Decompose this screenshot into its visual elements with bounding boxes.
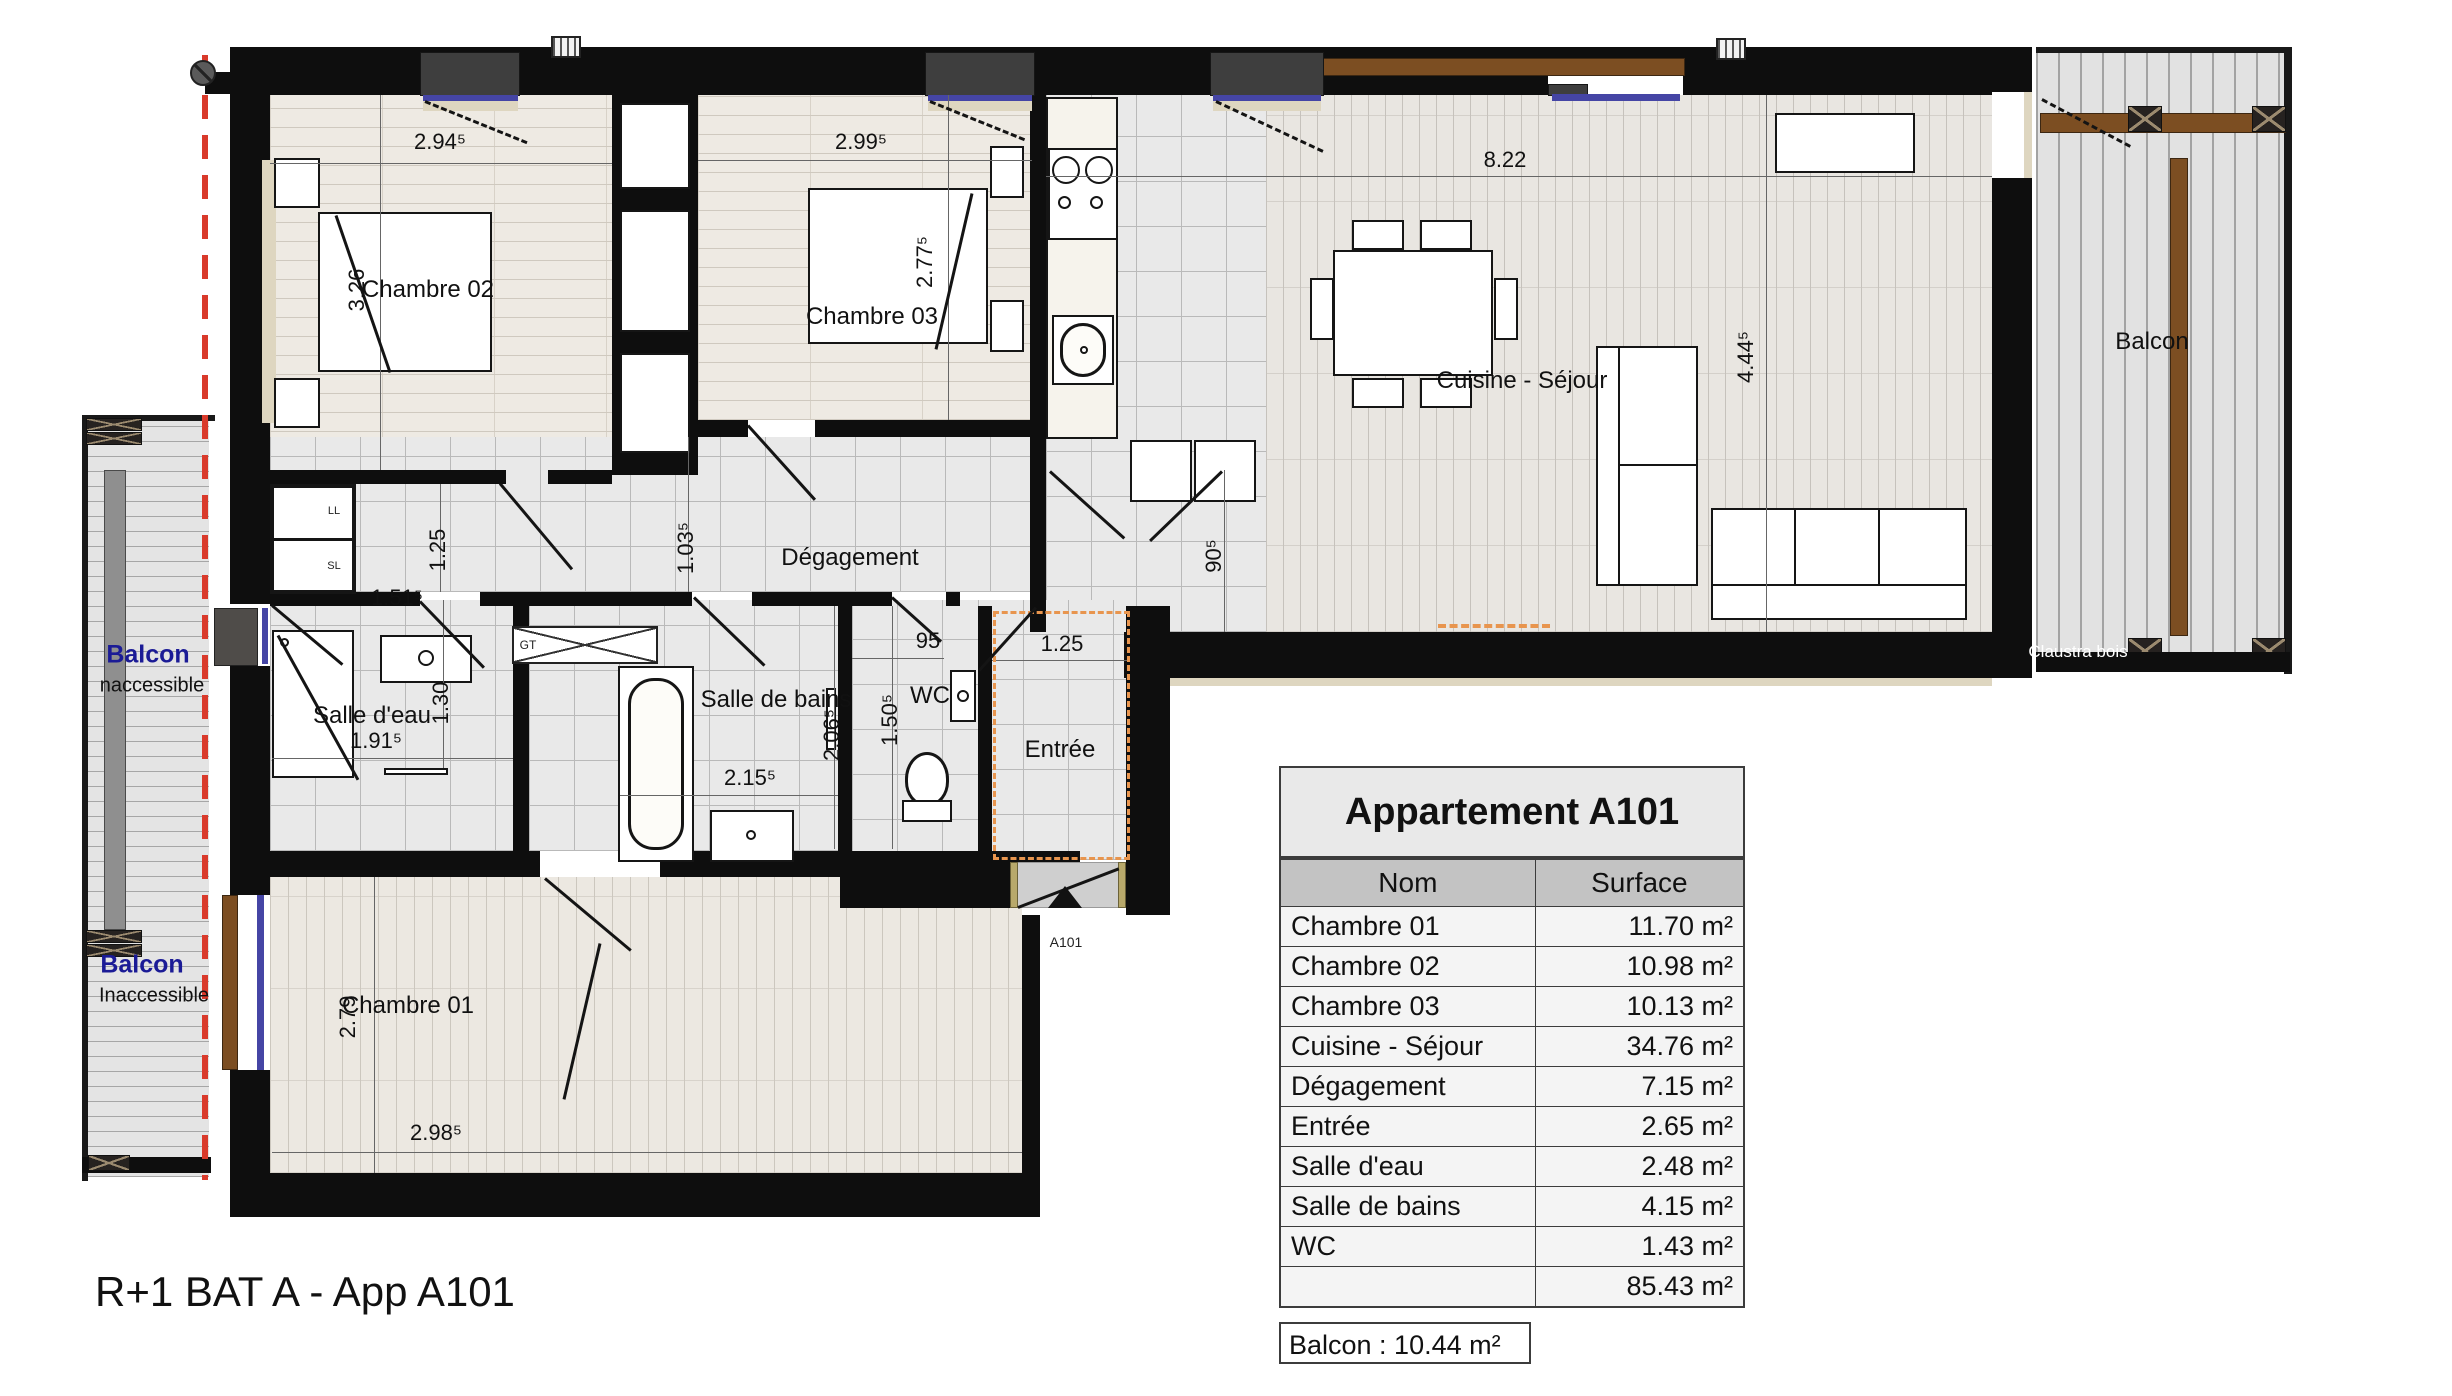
chair <box>1310 278 1334 340</box>
dimension-label: 1.03⁵ <box>673 522 699 574</box>
balcony-left-bottom-label: Balcon <box>100 951 183 980</box>
dimension-label: 3.26 <box>344 269 370 312</box>
room-label-entree: Entrée <box>1025 736 1096 764</box>
surface-value-cell: 34.76 m² <box>1535 1027 1744 1067</box>
dimension-label: 90⁵ <box>1201 539 1227 573</box>
balcony-edge <box>2036 47 2292 53</box>
wall <box>752 592 892 606</box>
small-label-gt: GT <box>520 638 537 652</box>
roller-shutter <box>420 52 520 96</box>
table-row: WC1.43 m² <box>1280 1227 1744 1267</box>
chair <box>1352 220 1404 250</box>
table-row: Chambre 0310.13 m² <box>1280 987 1744 1027</box>
wall <box>978 606 992 851</box>
burner-icon <box>1090 196 1103 209</box>
dimension-label: 2.94⁵ <box>414 129 466 155</box>
dimension-line <box>272 758 513 759</box>
dimension-label: 8.22 <box>1484 147 1527 173</box>
wall <box>230 1173 1040 1217</box>
facade-line <box>1140 678 1992 686</box>
basin-icon <box>418 650 434 666</box>
table-row: Entrée2.65 m² <box>1280 1107 1744 1147</box>
small-label-sl: SL <box>327 560 340 572</box>
wall <box>230 851 540 877</box>
balcony-column <box>104 470 126 930</box>
wall <box>698 420 748 437</box>
drain-icon <box>746 830 756 840</box>
room-label-chambre-02: Chambre 02 <box>362 276 494 304</box>
furniture-line <box>1618 348 1620 584</box>
table-row: Chambre 0111.70 m² <box>1280 907 1744 947</box>
table-row: Salle d'eau2.48 m² <box>1280 1147 1744 1187</box>
dimension-label: 95 <box>916 628 940 654</box>
balcony-edge <box>2284 47 2292 674</box>
dimension-label: 1.25 <box>1041 631 1084 657</box>
surface-value-cell: 10.13 m² <box>1535 987 1744 1027</box>
surface-value-cell: 2.48 m² <box>1535 1147 1744 1187</box>
table-row: Cuisine - Séjour34.76 m² <box>1280 1027 1744 1067</box>
room-label-degagement: Dégagement <box>781 544 918 572</box>
wall <box>815 420 1030 437</box>
post-icon <box>86 930 142 943</box>
dimension-line <box>852 658 944 659</box>
dimension-line <box>620 795 838 796</box>
room-name-cell: Dégagement <box>1280 1067 1535 1107</box>
dimension-label: 4.44⁵ <box>1733 331 1759 383</box>
surface-value-cell: 11.70 m² <box>1535 907 1744 947</box>
chair <box>1494 278 1518 340</box>
room-name-cell: Chambre 01 <box>1280 907 1535 947</box>
dimension-label: 2.99⁵ <box>835 129 887 155</box>
claustra-bois-label: Claustra bois <box>2028 642 2127 662</box>
room-label-chambre-01: Chambre 01 <box>342 992 474 1020</box>
wardrobe <box>620 353 690 453</box>
wall <box>480 592 692 606</box>
cabinet <box>1194 440 1256 502</box>
entrance-arrow-icon <box>1048 886 1082 908</box>
window-glazing <box>257 895 264 1070</box>
cabinet <box>1130 440 1192 502</box>
wall <box>1022 915 1040 1173</box>
total-surface-value: 85.43 m² <box>1535 1267 1744 1308</box>
roller-shutter <box>1210 52 1324 96</box>
floor-chambre-01 <box>270 877 1022 1173</box>
floor-plan-sheet: Balcon naccessible Balcon Inaccessible B… <box>0 0 2452 1396</box>
wood-rail <box>222 895 238 1070</box>
vent-icon <box>1716 38 1746 60</box>
wall <box>548 470 612 484</box>
table-total-row: 85.43 m² <box>1280 1267 1744 1308</box>
balcony-right-label: Balcon <box>2115 328 2188 356</box>
post-icon <box>86 418 142 431</box>
dimension-label: 1.51⁵ <box>371 585 423 611</box>
post-icon <box>2252 106 2286 132</box>
surface-table: Appartement A101 Nom Surface Chambre 011… <box>1279 766 1745 1308</box>
table-title: Appartement A101 <box>1279 766 1745 858</box>
dimension-line <box>1766 95 1767 632</box>
surface-value-cell: 2.65 m² <box>1535 1107 1744 1147</box>
dining-table <box>1333 250 1493 376</box>
flush-icon <box>957 690 969 702</box>
nightstand <box>990 300 1024 352</box>
room-label-cuisine-sejour: Cuisine - Séjour <box>1437 367 1608 395</box>
burner-icon <box>1058 196 1071 209</box>
skylight <box>1775 113 1915 173</box>
furniture-line <box>1620 464 1696 466</box>
post-icon <box>2128 106 2162 132</box>
table-header-row: Nom Surface <box>1280 859 1744 907</box>
toilet-bowl <box>905 752 949 806</box>
furniture-line <box>272 538 354 541</box>
post-icon <box>86 432 142 445</box>
wardrobe <box>620 103 690 189</box>
wood-rail <box>2170 158 2188 636</box>
shutter-box <box>214 608 258 666</box>
table-row: Dégagement7.15 m² <box>1280 1067 1744 1107</box>
window-sill <box>2024 92 2032 178</box>
balcony-surface-note: Balcon : 10.44 m² <box>1279 1322 1531 1364</box>
surface-value-cell: 1.43 m² <box>1535 1227 1744 1267</box>
door-jamb <box>1010 862 1018 908</box>
furniture-line <box>1794 510 1796 584</box>
survey-marker-icon <box>190 60 216 86</box>
burner-icon <box>1052 156 1080 184</box>
window-glazing <box>1552 94 1680 101</box>
room-name-cell: Chambre 03 <box>1280 987 1535 1027</box>
roller-shutter <box>925 52 1035 96</box>
drain-icon <box>1080 346 1088 354</box>
wall <box>230 470 506 484</box>
dimension-line <box>1046 176 1992 177</box>
balcony-left-bottom-sublabel: Inaccessible <box>99 985 209 1008</box>
toilet-base <box>902 800 952 822</box>
burner-icon <box>1085 156 1113 184</box>
drawing-title: R+1 BAT A - App A101 <box>95 1268 515 1316</box>
dimension-label: 1.91⁵ <box>350 728 402 754</box>
lot-boundary-line <box>202 55 208 1180</box>
dimension-label: 2.15⁵ <box>724 765 776 791</box>
dimension-label: 2.79 <box>335 996 361 1039</box>
wall <box>840 860 1018 908</box>
nightstand <box>990 146 1024 198</box>
balcony-left-top-sublabel: naccessible <box>100 675 205 698</box>
dimension-line <box>374 877 375 1173</box>
chair <box>1420 220 1472 250</box>
surface-value-cell: 4.15 m² <box>1535 1187 1744 1227</box>
table-row: Salle de bains4.15 m² <box>1280 1187 1744 1227</box>
sofa <box>1711 508 1967 620</box>
room-name-cell: Salle d'eau <box>1280 1147 1535 1187</box>
furniture-line <box>1713 584 1965 586</box>
room-name-cell: Entrée <box>1280 1107 1535 1147</box>
dimension-label: 1.50⁵ <box>877 694 903 746</box>
room-name-cell: Cuisine - Séjour <box>1280 1027 1535 1067</box>
dimension-line <box>698 160 1032 161</box>
furniture-line <box>1878 510 1880 584</box>
wall <box>946 592 960 606</box>
sofa <box>1596 346 1698 586</box>
dimension-line <box>272 1152 1022 1153</box>
total-row-empty-cell <box>1280 1267 1535 1308</box>
vent-icon <box>551 36 581 58</box>
room-name-cell: WC <box>1280 1227 1535 1267</box>
balcony-left-deck <box>82 421 209 1177</box>
bathtub-basin <box>628 678 684 850</box>
table-row: Chambre 0210.98 m² <box>1280 947 1744 987</box>
dimension-line <box>948 95 949 420</box>
surface-value-cell: 7.15 m² <box>1535 1067 1744 1107</box>
col-header-nom: Nom <box>1280 859 1535 907</box>
wall <box>1030 95 1046 632</box>
dimension-label: 2.98⁵ <box>410 1120 462 1146</box>
room-label-wc: WC <box>910 682 950 710</box>
balcony-edge <box>82 415 88 1181</box>
wall <box>1124 632 2032 678</box>
dimension-label: 1.30 <box>428 682 454 725</box>
dimension-label: 2.77⁵ <box>912 236 938 288</box>
entry-zone-highlight <box>1438 624 1550 638</box>
room-label-chambre-03: Chambre 03 <box>806 303 938 331</box>
post-icon <box>88 1155 130 1171</box>
surface-table-grid: Nom Surface Chambre 0111.70 m²Chambre 02… <box>1279 858 1745 1308</box>
balcony-left-top-label: Balcon <box>106 641 189 670</box>
surface-value-cell: 10.98 m² <box>1535 947 1744 987</box>
wardrobe <box>620 210 690 332</box>
room-label-salle-d-eau: Salle d'eau <box>313 702 431 730</box>
nightstand <box>274 158 320 208</box>
room-name-cell: Chambre 02 <box>1280 947 1535 987</box>
chair <box>1352 378 1404 408</box>
small-label-a101: A101 <box>1050 934 1083 950</box>
dimension-label: 1.25 <box>425 529 451 572</box>
room-name-cell: Salle de bains <box>1280 1187 1535 1227</box>
towel-rail <box>384 768 448 775</box>
col-header-surface: Surface <box>1535 859 1744 907</box>
window-glazing <box>262 608 268 664</box>
nightstand <box>274 378 320 428</box>
dimension-line <box>270 163 612 164</box>
small-label-ll: LL <box>328 505 340 517</box>
wall <box>1126 606 1170 915</box>
dimension-label: 2.06⁵ <box>819 709 845 761</box>
